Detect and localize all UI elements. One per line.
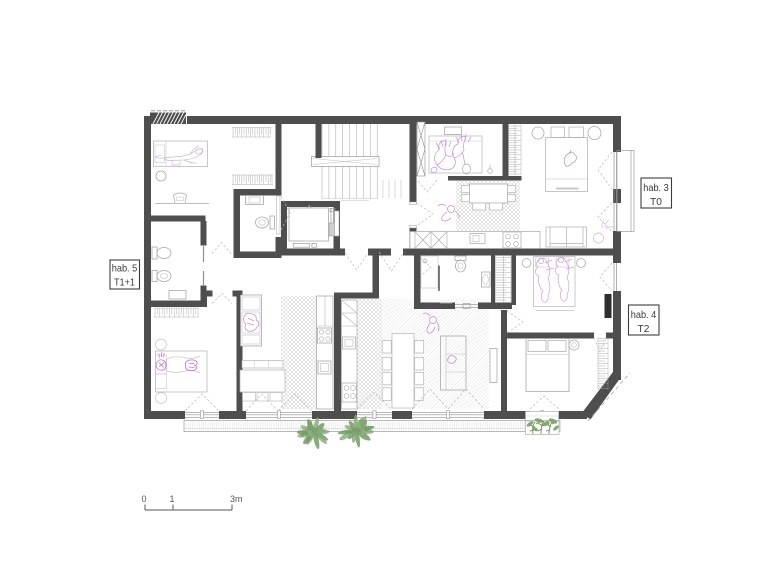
- svg-text:hab. 3: hab. 3: [643, 183, 669, 194]
- svg-text:1: 1: [169, 494, 174, 504]
- svg-text:T1+1: T1+1: [114, 278, 135, 289]
- svg-text:3m: 3m: [230, 494, 243, 504]
- svg-text:T0: T0: [650, 197, 662, 208]
- svg-text:hab. 4: hab. 4: [631, 310, 657, 321]
- svg-text:hab. 5: hab. 5: [112, 263, 138, 274]
- svg-text:T2: T2: [638, 324, 650, 335]
- svg-text:0: 0: [141, 494, 146, 504]
